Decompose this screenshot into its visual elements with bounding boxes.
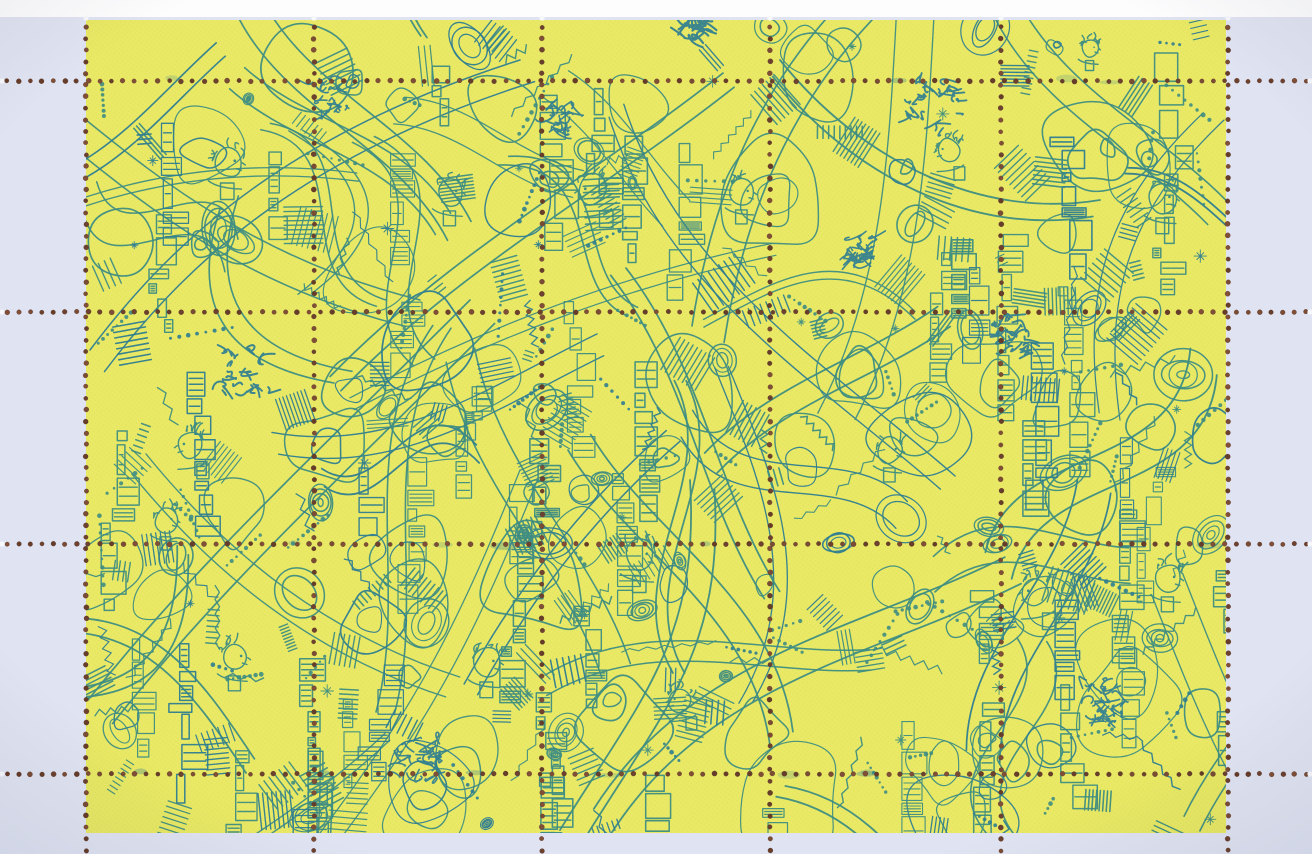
sheet-canvas xyxy=(0,0,1312,854)
artistamp-sheet-photo xyxy=(0,0,1312,854)
